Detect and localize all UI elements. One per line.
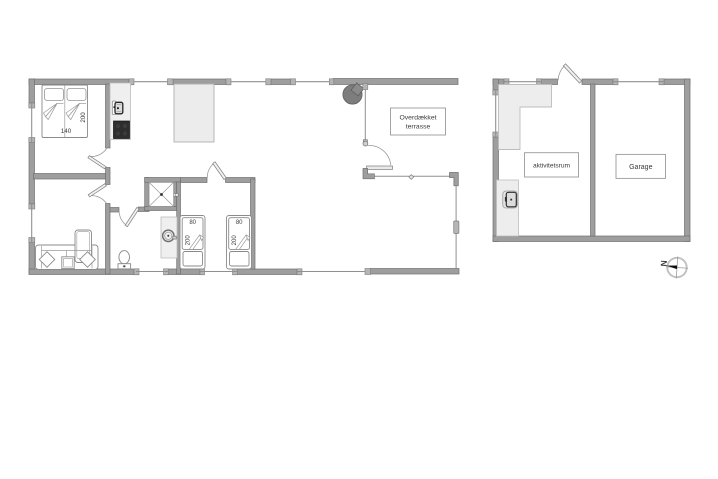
svg-text:80: 80 — [189, 220, 196, 226]
svg-text:140: 140 — [61, 128, 72, 135]
svg-text:80: 80 — [236, 220, 243, 226]
svg-text:aktivitetsrum: aktivitetsrum — [533, 163, 571, 170]
svg-text:200: 200 — [80, 112, 87, 123]
svg-text:Overdækket: Overdækket — [399, 115, 436, 122]
svg-text:N: N — [659, 260, 669, 267]
svg-text:Garage: Garage — [629, 164, 652, 171]
svg-text:200: 200 — [185, 235, 191, 246]
svg-text:terrasse: terrasse — [406, 124, 431, 131]
svg-text:200: 200 — [232, 235, 238, 246]
